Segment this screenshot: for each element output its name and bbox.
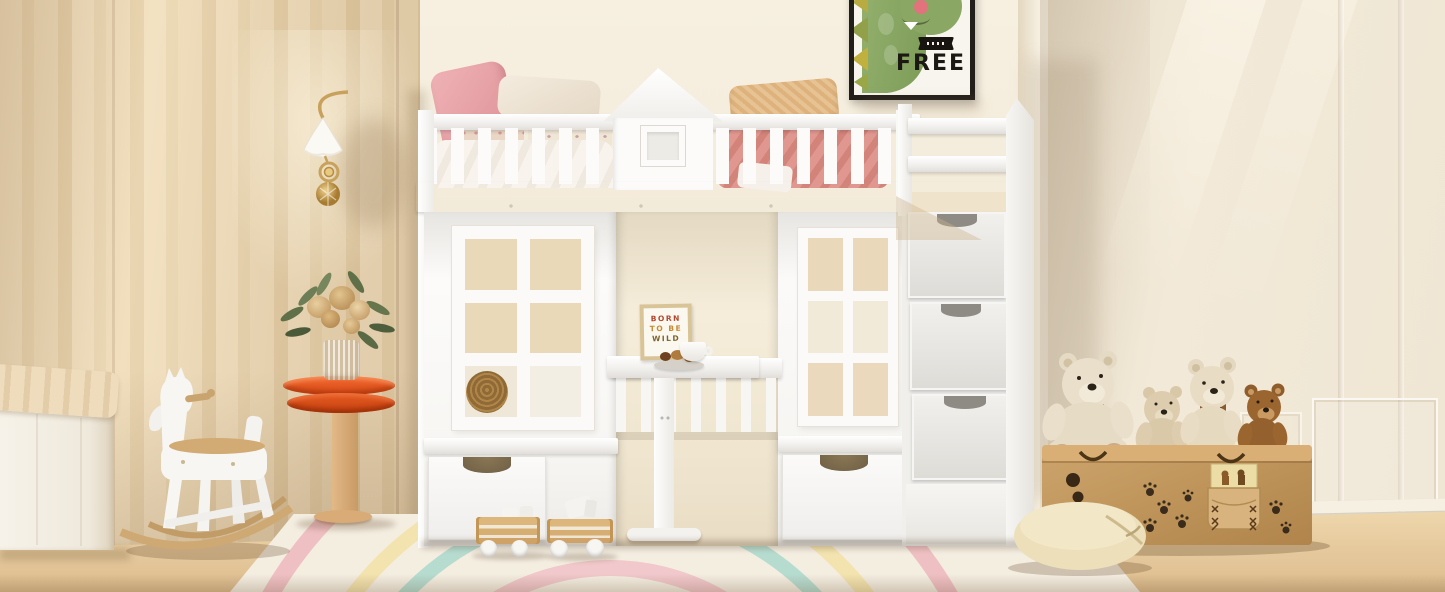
stairs-rail-bar bbox=[908, 156, 1018, 172]
rocking-horse bbox=[113, 366, 303, 571]
dino-belly-spot bbox=[878, 13, 894, 35]
window-pane bbox=[808, 363, 843, 416]
dino-spike bbox=[854, 73, 868, 91]
wagon-cargo-white bbox=[584, 499, 597, 517]
window-pane bbox=[465, 239, 517, 290]
teddy-bears-and-chest bbox=[1000, 340, 1340, 585]
plate bbox=[654, 360, 704, 370]
dino-spike bbox=[852, 0, 868, 13]
sconce-shade bbox=[304, 118, 342, 157]
house-window bbox=[641, 126, 685, 166]
flower-bouquet bbox=[281, 284, 391, 350]
desk-leg bbox=[654, 378, 674, 530]
straw-hat bbox=[466, 371, 508, 413]
kids-room-photo: FREE bbox=[0, 0, 1445, 592]
bed-drawer-right bbox=[782, 454, 906, 540]
dino-poster: FREE bbox=[849, 0, 975, 100]
wagon-wheel bbox=[480, 540, 497, 557]
window-pane bbox=[808, 301, 843, 354]
rail-slats-left bbox=[424, 128, 620, 184]
chest-card bbox=[1211, 464, 1257, 490]
window-pane bbox=[808, 238, 843, 291]
bench-cushion bbox=[0, 364, 119, 419]
bench-base bbox=[0, 408, 114, 550]
window-pane bbox=[530, 366, 582, 417]
chest-knot bbox=[1066, 473, 1080, 487]
chest-knot bbox=[1073, 492, 1084, 503]
sconce-arm bbox=[320, 92, 348, 118]
poster-title: FREE bbox=[896, 51, 972, 76]
wagon-wheel bbox=[550, 540, 568, 558]
window-pane bbox=[853, 363, 888, 416]
stairs-drawer-2 bbox=[910, 302, 1012, 390]
frame-text-line2: TO BE bbox=[644, 324, 688, 335]
rose bbox=[321, 310, 340, 328]
wagon-wheel bbox=[511, 540, 528, 557]
window-pane bbox=[530, 239, 582, 290]
wall-lamp bbox=[282, 88, 372, 248]
drawer-notch bbox=[820, 455, 868, 471]
lower-bar-right bbox=[778, 436, 912, 452]
dino-spike bbox=[850, 17, 868, 43]
window-pane bbox=[853, 238, 888, 291]
window-pane bbox=[853, 301, 888, 354]
lower-bar-left bbox=[424, 438, 618, 454]
window-panel-left bbox=[452, 226, 594, 430]
desk-leg-dots bbox=[659, 416, 671, 420]
rail-slats-right bbox=[716, 128, 902, 184]
drawer-notch bbox=[941, 304, 981, 317]
horse-seat bbox=[169, 438, 265, 454]
dino-spike bbox=[852, 47, 868, 71]
teacup bbox=[680, 342, 706, 361]
table-leg bbox=[332, 408, 358, 516]
rose bbox=[349, 300, 370, 320]
lower-guard-rail-slats bbox=[616, 378, 778, 432]
drawer-notch bbox=[463, 457, 511, 473]
poster-banner bbox=[918, 37, 954, 50]
drawer-notch bbox=[944, 396, 986, 409]
table-lower-disc bbox=[287, 393, 395, 413]
stairs-wall-gap bbox=[906, 192, 1016, 214]
drawer-notch bbox=[937, 214, 977, 227]
teddy-bear-large-cream bbox=[1039, 351, 1138, 461]
wagon-wheel bbox=[586, 539, 604, 557]
table-base bbox=[314, 510, 372, 523]
horse-leg bbox=[197, 474, 211, 531]
window-pane bbox=[530, 303, 582, 354]
pastry bbox=[660, 352, 671, 361]
window-panel-right bbox=[798, 228, 898, 426]
desk-base bbox=[627, 528, 701, 541]
teacup-handle bbox=[704, 346, 713, 356]
rose bbox=[343, 318, 360, 334]
window-pane bbox=[465, 303, 517, 354]
window-pane-hat bbox=[465, 366, 517, 417]
stairs-drawer-1 bbox=[908, 212, 1006, 298]
